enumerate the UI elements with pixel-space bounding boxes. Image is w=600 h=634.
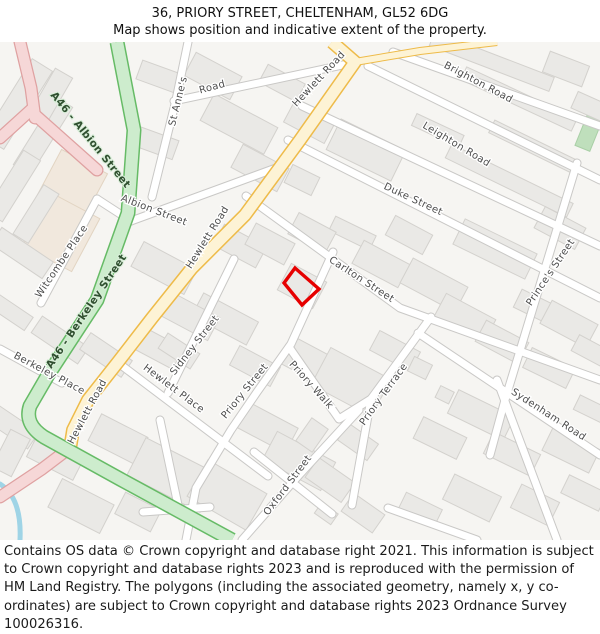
map-canvas: A46 - Albion Street A46 - Berkeley Stree…: [0, 42, 600, 540]
copyright-notice: Contains OS data © Crown copyright and d…: [0, 540, 600, 634]
map-container: A46 - Albion Street A46 - Berkeley Stree…: [0, 42, 600, 540]
page-title: 36, PRIORY STREET, CHELTENHAM, GL52 6DG: [0, 5, 600, 22]
street-label-duke-street: Duke Street: [382, 181, 444, 218]
page-subtitle: Map shows position and indicative extent…: [0, 22, 600, 39]
map-header: 36, PRIORY STREET, CHELTENHAM, GL52 6DG …: [0, 0, 600, 42]
